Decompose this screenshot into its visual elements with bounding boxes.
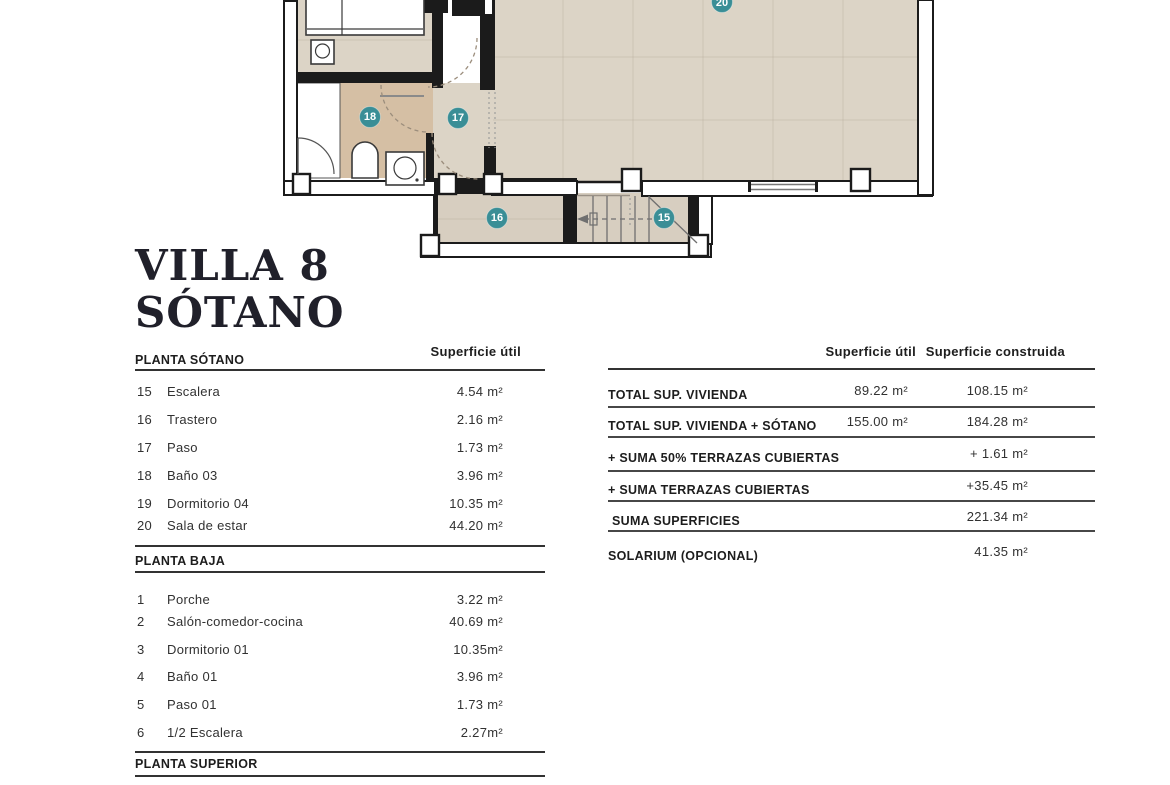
table-row: 20 Sala de estar 44.20 m² xyxy=(135,518,545,536)
room-name: Porche xyxy=(167,592,210,607)
room-area: 3.96 m² xyxy=(457,669,503,684)
section-header-planta-baja: PLANTA BAJA xyxy=(135,554,225,568)
room-name: Paso xyxy=(167,440,198,455)
room-area: 2.16 m² xyxy=(457,412,503,427)
room-area: 3.96 m² xyxy=(457,468,503,483)
room-area: 10.35m² xyxy=(453,642,503,657)
table-row: 17 Paso 1.73 m² xyxy=(135,440,545,458)
table-row: 3 Dormitorio 01 10.35m² xyxy=(135,642,545,660)
divider xyxy=(608,368,1095,370)
room-number: 15 xyxy=(137,384,152,399)
divider xyxy=(608,406,1095,408)
room-area: 4.54 m² xyxy=(457,384,503,399)
room-number: 4 xyxy=(137,669,145,684)
divider xyxy=(135,369,545,371)
room-number: 5 xyxy=(137,697,145,712)
room-area: 1.73 m² xyxy=(457,697,503,712)
divider xyxy=(608,530,1095,532)
construida-value: 221.34 m² xyxy=(967,509,1028,524)
room-number: 2 xyxy=(137,614,145,629)
table-row: 1 Porche 3.22 m² xyxy=(135,592,545,610)
room-area: 1.73 m² xyxy=(457,440,503,455)
table-row: 5 Paso 01 1.73 m² xyxy=(135,697,545,715)
divider xyxy=(608,500,1095,502)
page: { "title": { "line1": "VILLA 8", "line2"… xyxy=(0,0,1170,785)
construida-value: 184.28 m² xyxy=(967,414,1028,429)
room-name: Paso 01 xyxy=(167,697,217,712)
room-number: 16 xyxy=(137,412,152,427)
divider xyxy=(135,545,545,547)
room-area: 3.22 m² xyxy=(457,592,503,607)
table-row: 15 Escalera 4.54 m² xyxy=(135,384,545,402)
divider xyxy=(135,775,545,777)
room-number: 20 xyxy=(137,518,152,533)
room-area: 10.35 m² xyxy=(449,496,503,511)
room-area: 44.20 m² xyxy=(449,518,503,533)
divider xyxy=(135,751,545,753)
room-name: 1/2 Escalera xyxy=(167,725,243,740)
room-number: 1 xyxy=(137,592,145,607)
room-number: 3 xyxy=(137,642,145,657)
room-name: Sala de estar xyxy=(167,518,248,533)
construida-value: 108.15 m² xyxy=(967,383,1028,398)
total-label: + SUMA TERRAZAS CUBIERTAS xyxy=(608,483,810,497)
section-header-planta-sotano: PLANTA SÓTANO xyxy=(135,353,244,367)
room-name: Escalera xyxy=(167,384,220,399)
room-number: 18 xyxy=(137,468,152,483)
room-area: 2.27m² xyxy=(461,725,503,740)
total-label: TOTAL SUP. VIVIENDA + SÓTANO xyxy=(608,419,817,433)
divider xyxy=(608,436,1095,438)
room-name: Salón-comedor-cocina xyxy=(167,614,303,629)
table-row: 6 1/2 Escalera 2.27m² xyxy=(135,725,545,743)
divider xyxy=(608,470,1095,472)
room-area: 40.69 m² xyxy=(449,614,503,629)
table-row: 2 Salón-comedor-cocina 40.69 m² xyxy=(135,614,545,632)
room-number: 17 xyxy=(137,440,152,455)
room-name: Dormitorio 04 xyxy=(167,496,249,511)
column-header-superficie-util: Superficie útil xyxy=(826,344,916,359)
room-name: Trastero xyxy=(167,412,217,427)
column-header-superficie-construida: Superficie construida xyxy=(926,344,1065,359)
column-header-superficie-util: Superficie útil xyxy=(431,344,521,359)
divider xyxy=(135,571,545,573)
room-name: Baño 01 xyxy=(167,669,218,684)
table-row: 19 Dormitorio 04 10.35 m² xyxy=(135,496,545,514)
section-header-planta-superior: PLANTA SUPERIOR xyxy=(135,757,258,771)
room-name: Dormitorio 01 xyxy=(167,642,249,657)
total-label: TOTAL SUP. VIVIENDA xyxy=(608,388,748,402)
total-label: SOLARIUM (OPCIONAL) xyxy=(608,549,758,563)
table-row: 18 Baño 03 3.96 m² xyxy=(135,468,545,486)
util-value: 89.22 m² xyxy=(854,383,908,398)
room-number: 6 xyxy=(137,725,145,740)
construida-value: +35.45 m² xyxy=(966,478,1028,493)
total-label: SUMA SUPERFICIES xyxy=(612,514,740,528)
table-row: 4 Baño 01 3.96 m² xyxy=(135,669,545,687)
table-row: 16 Trastero 2.16 m² xyxy=(135,412,545,430)
room-number: 19 xyxy=(137,496,152,511)
construida-value: + 1.61 m² xyxy=(970,446,1028,461)
construida-value: 41.35 m² xyxy=(974,544,1028,559)
total-label: + SUMA 50% TERRAZAS CUBIERTAS xyxy=(608,451,839,465)
util-value: 155.00 m² xyxy=(847,414,908,429)
rooms-table: PLANTA SÓTANO Superficie útil 15 Escaler… xyxy=(135,0,545,785)
totals-table: Superficie útil Superficie construida TO… xyxy=(608,0,1095,785)
room-name: Baño 03 xyxy=(167,468,218,483)
